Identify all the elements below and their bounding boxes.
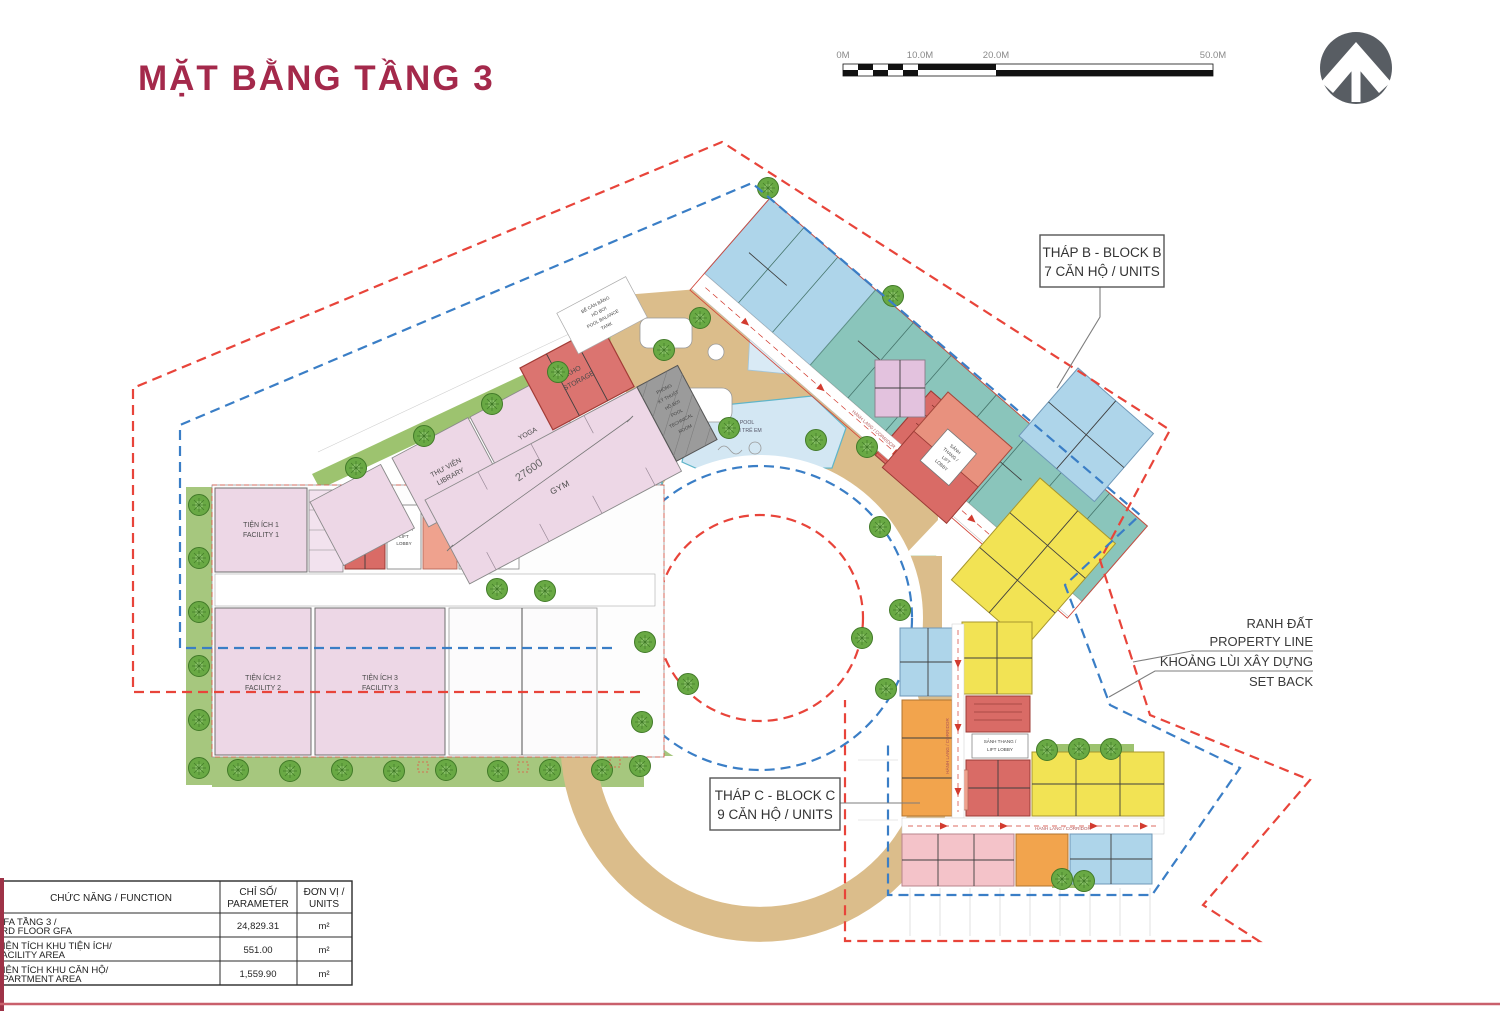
svg-text:SET BACK: SET BACK (1249, 674, 1313, 689)
svg-text:THÁP B - BLOCK B: THÁP B - BLOCK B (1042, 245, 1161, 260)
block-c-stair-core (966, 696, 1030, 732)
svg-text:0M: 0M (836, 50, 849, 61)
svg-text:3RD FLOOR GFA: 3RD FLOOR GFA (0, 926, 73, 937)
area-table: CHỨC NĂNG / FUNCTION CHỈ SỐ/ PARAMETER Đ… (0, 881, 352, 985)
svg-text:FACILITY 1: FACILITY 1 (243, 532, 279, 539)
svg-text:HÀNH LANG / CORRIDOR: HÀNH LANG / CORRIDOR (1035, 825, 1091, 831)
block-c-wing: SẢNH THANG / LIFT LOBBY HÀNH LANG / CORR… (900, 622, 1164, 886)
north-arrow-icon (1320, 32, 1392, 104)
svg-text:SẢNH THANG /: SẢNH THANG / (984, 738, 1017, 744)
callout-block-b: THÁP B - BLOCK B 7 CĂN HỘ / UNITS (1040, 235, 1164, 388)
svg-text:HÀNH LANG / CORRIDOR: HÀNH LANG / CORRIDOR (944, 718, 950, 774)
svg-text:PROPERTY LINE: PROPERTY LINE (1209, 634, 1313, 649)
page-title: MẶT BẰNG TẦNG 3 (138, 58, 495, 98)
floor-plan-drawing: SWIMMING POOL HỒ BƠI KID POOL HỒ BƠI TRẺ… (0, 0, 1500, 1011)
table-header-parameter: CHỈ SỐ/ (239, 884, 276, 898)
svg-text:20.0M: 20.0M (983, 50, 1009, 61)
scale-bar: 0M 10.0M 20.0M 50.0M (836, 50, 1226, 76)
svg-text:FACILITY AREA: FACILITY AREA (0, 950, 66, 961)
table-header-units: ĐƠN VỊ / (304, 887, 345, 898)
facility-corridor (215, 574, 655, 606)
svg-text:LOBBY: LOBBY (396, 541, 411, 546)
facility-2-label: TIỆN ÍCH 2 (245, 673, 281, 682)
svg-text:24,829.31: 24,829.31 (237, 921, 279, 932)
svg-text:m²: m² (318, 945, 329, 956)
svg-text:1,559.90: 1,559.90 (240, 969, 277, 980)
facility-1-room (215, 488, 307, 572)
svg-text:RANH ĐẤT: RANH ĐẤT (1247, 616, 1314, 631)
floor-plan-slide: SWIMMING POOL HỒ BƠI KID POOL HỒ BƠI TRẺ… (0, 0, 1500, 1011)
block-c-lift-lobby (972, 734, 1028, 758)
table-header-function: CHỨC NĂNG / FUNCTION (50, 891, 172, 904)
svg-text:551.00: 551.00 (243, 945, 272, 956)
svg-text:THÁP C - BLOCK C: THÁP C - BLOCK C (715, 788, 836, 803)
svg-text:50.0M: 50.0M (1200, 50, 1226, 61)
svg-text:UNITS: UNITS (309, 899, 339, 910)
svg-text:PARAMETER: PARAMETER (227, 899, 289, 910)
svg-text:LIFT LOBBY: LIFT LOBBY (987, 747, 1013, 752)
svg-text:KHOẢNG LÙI XÂY DỰNG: KHOẢNG LÙI XÂY DỰNG (1160, 654, 1313, 669)
svg-text:9 CĂN HỘ / UNITS: 9 CĂN HỘ / UNITS (717, 807, 833, 822)
svg-text:7 CĂN HỘ / UNITS: 7 CĂN HỘ / UNITS (1044, 264, 1160, 279)
facility-1-label: TIỆN ÍCH 1 (243, 520, 279, 529)
facility-3-label: TIỆN ÍCH 3 (362, 673, 398, 682)
svg-text:10.0M: 10.0M (907, 50, 933, 61)
facility-band: TIỆN ÍCH 1 FACILITY 1 SẢNH THANG / LIFT … (212, 485, 664, 757)
frame-left-edge (0, 878, 4, 1011)
svg-text:m²: m² (318, 921, 329, 932)
svg-text:APARTMENT AREA: APARTMENT AREA (0, 974, 82, 985)
svg-text:m²: m² (318, 969, 329, 980)
